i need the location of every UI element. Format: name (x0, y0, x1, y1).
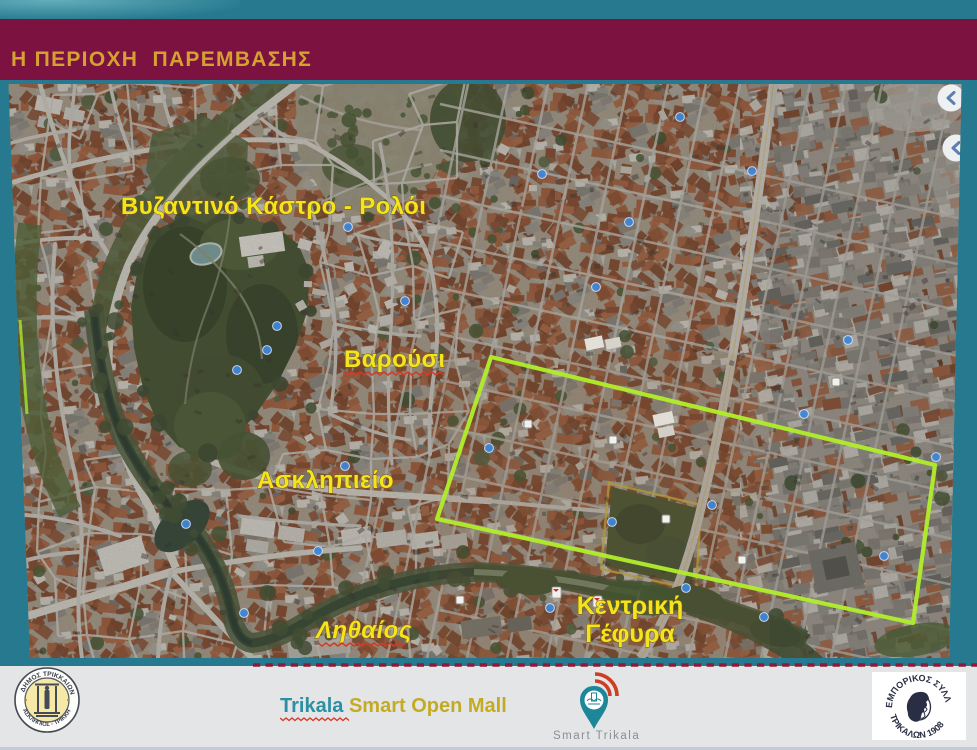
svg-text:Ασκληπιείο: Ασκληπιείο (257, 467, 394, 494)
svg-text:Γέφυρα: Γέφυρα (585, 620, 675, 648)
svg-text:Κεντρική: Κεντρική (577, 592, 684, 620)
svg-text:Ληθαίος: Ληθαίος (314, 617, 412, 644)
svg-text:Βαρούσι: Βαρούσι (344, 346, 445, 373)
svg-text:Βυζαντινό Κάστρο - Ρολόι: Βυζαντινό Κάστρο - Ρολόι (121, 193, 426, 220)
